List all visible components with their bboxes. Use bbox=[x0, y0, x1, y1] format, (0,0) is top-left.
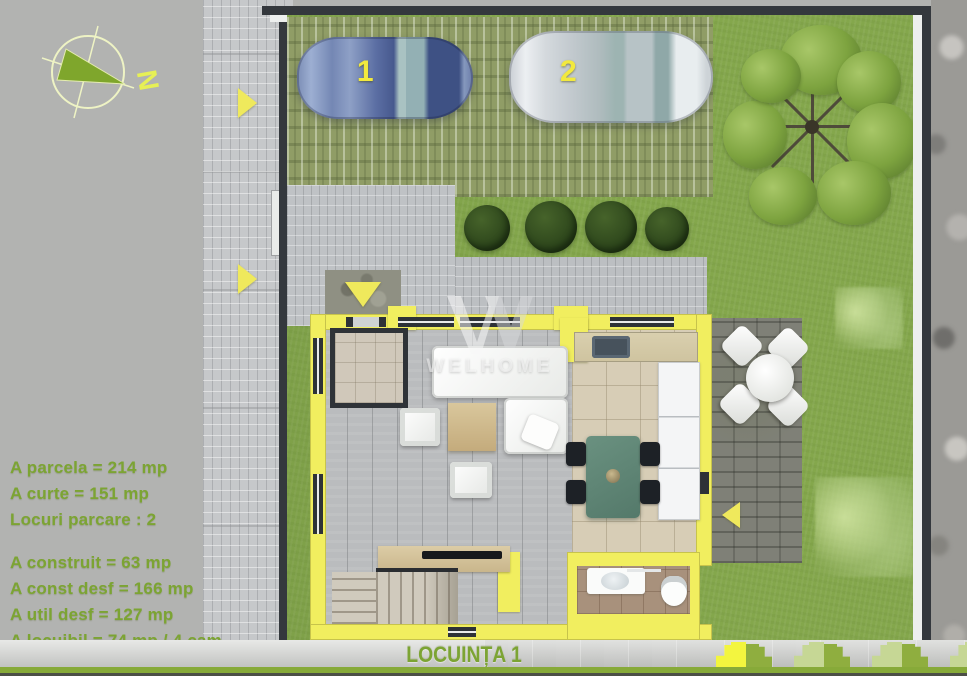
plan-title: LOCUINȚA 1 bbox=[406, 642, 521, 667]
large-tree bbox=[725, 25, 900, 230]
coffee-table bbox=[448, 403, 496, 451]
front-door-arrow-icon bbox=[345, 282, 381, 307]
area-statistics: A parcela = 214 mp A curte = 151 mp Locu… bbox=[10, 458, 265, 657]
car-parking-space-1: 1 bbox=[297, 37, 473, 119]
fence-north bbox=[262, 6, 934, 15]
dining-chair bbox=[566, 442, 586, 466]
stat-yard-area: A curte = 151 mp bbox=[10, 484, 265, 504]
stair-railing bbox=[376, 568, 458, 572]
kitchen-window bbox=[610, 317, 674, 327]
armchair bbox=[450, 462, 492, 498]
site-key-unit-highlighted bbox=[716, 642, 746, 667]
car-entrance-arrow-icon bbox=[238, 88, 257, 118]
television bbox=[422, 551, 502, 559]
bathroom-sink bbox=[601, 572, 629, 590]
site-key-unit bbox=[950, 642, 967, 667]
sofa bbox=[432, 346, 568, 398]
window bbox=[313, 338, 323, 394]
car-parking-space-2: 2 bbox=[509, 31, 713, 123]
staircase-upper-flight bbox=[332, 572, 376, 624]
stat-unfolded-built-area: A const desf = 166 mp bbox=[10, 579, 265, 599]
site-key-unit bbox=[746, 644, 772, 667]
site-key-unit bbox=[872, 642, 902, 667]
window bbox=[448, 627, 476, 637]
title-bar: LOCUINȚA 1 bbox=[0, 640, 967, 667]
towel-rail bbox=[627, 569, 661, 572]
dining-table bbox=[586, 436, 640, 518]
bush bbox=[464, 205, 510, 251]
site-key-unit bbox=[794, 642, 824, 667]
site-key-unit bbox=[824, 644, 850, 667]
wild-grass-clump bbox=[815, 477, 913, 577]
fence-east bbox=[922, 6, 931, 645]
house-floor-plan bbox=[310, 314, 712, 640]
bathroom bbox=[567, 552, 700, 640]
dining-chair bbox=[640, 480, 660, 504]
dining-chair bbox=[566, 480, 586, 504]
window bbox=[313, 474, 323, 534]
site-key bbox=[716, 640, 967, 667]
window bbox=[460, 317, 520, 327]
stat-parcel-area: A parcela = 214 mp bbox=[10, 458, 265, 478]
parking-space-2-label: 2 bbox=[560, 55, 577, 89]
terrace-door bbox=[699, 472, 709, 494]
bush bbox=[525, 201, 577, 253]
armchair bbox=[400, 408, 440, 446]
bush bbox=[585, 201, 637, 253]
neighboring-terrain bbox=[931, 0, 967, 676]
toilet bbox=[661, 576, 687, 606]
compass-north-label: N bbox=[131, 68, 165, 93]
stat-parking-spots: Locuri parcare : 2 bbox=[10, 510, 265, 530]
pedestrian-entrance-arrow-icon bbox=[238, 264, 257, 294]
stat-built-area: A construit = 63 mp bbox=[10, 553, 265, 573]
wild-grass-clump bbox=[835, 287, 903, 349]
kitchen-appliance-column bbox=[658, 362, 700, 520]
window bbox=[398, 317, 454, 327]
bush bbox=[645, 207, 689, 251]
table-centerpiece bbox=[606, 469, 620, 483]
tree-trunk bbox=[805, 120, 819, 134]
front-door bbox=[346, 317, 386, 327]
kitchen-sink bbox=[592, 336, 630, 358]
parking-space-1-label: 1 bbox=[357, 55, 374, 89]
compass-icon: N bbox=[36, 22, 168, 122]
site-plan-canvas: 1 2 bbox=[0, 0, 967, 676]
fence-west bbox=[279, 6, 287, 645]
site-key-unit bbox=[902, 644, 928, 667]
terrace-access-arrow-icon bbox=[722, 502, 740, 528]
patio-table bbox=[746, 354, 794, 402]
entrance-vestibule bbox=[330, 328, 408, 408]
stat-usable-area: A util desf = 127 mp bbox=[10, 605, 265, 625]
staircase-lower-flight bbox=[376, 572, 458, 624]
dining-chair bbox=[640, 442, 660, 466]
fence-cap-east bbox=[913, 15, 922, 640]
